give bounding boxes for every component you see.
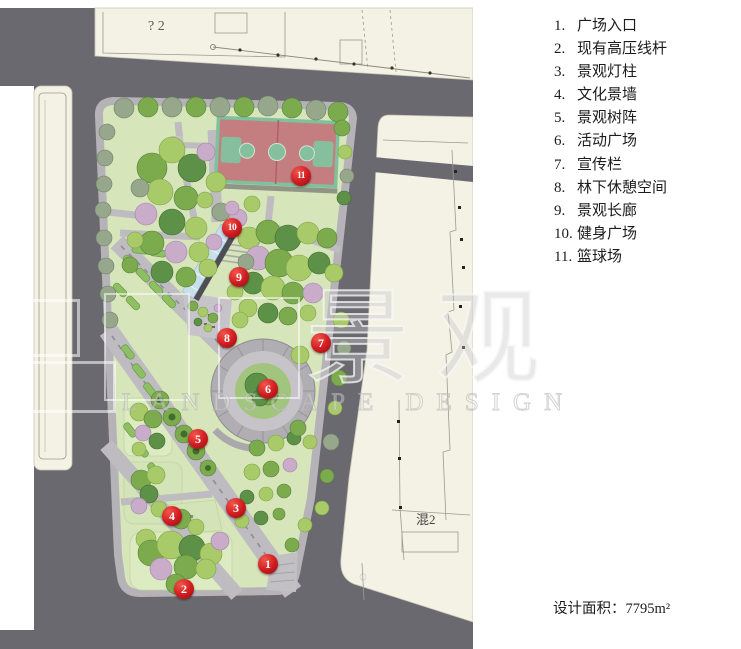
legend-item-label: 活动广场	[577, 133, 637, 149]
left-margin	[0, 86, 34, 630]
map-marker-4: 4	[162, 506, 182, 526]
legend-item-label: 健身广场	[577, 226, 637, 242]
legend-item-number: 4.	[554, 84, 577, 107]
legend-item-number: 3.	[554, 61, 577, 84]
design-area-note: 设计面积：7795m²	[553, 597, 670, 618]
legend-item-label: 广场入口	[577, 18, 637, 34]
legend-item: 2.现有高压线杆	[554, 38, 667, 61]
legend-item-number: 6.	[554, 130, 577, 153]
map-marker-9: 9	[229, 267, 249, 287]
landscape-plan-page: ? 2 混2	[0, 0, 741, 649]
block-label-hun: 混2	[416, 512, 436, 527]
legend-item: 3.景观灯柱	[554, 61, 667, 84]
legend-list: 1.广场入口2.现有高压线杆3.景观灯柱4.文化景墙5.景观树阵6.活动广场7.…	[554, 15, 667, 269]
legend-item: 9.景观长廊	[554, 200, 667, 223]
map-marker-2: 2	[174, 579, 194, 599]
map-marker-6: 6	[258, 379, 278, 399]
basketball-court	[215, 117, 340, 193]
legend-item-number: 1.	[554, 15, 577, 38]
legend-item-number: 2.	[554, 38, 577, 61]
legend-item: 4.文化景墙	[554, 84, 667, 107]
legend-item-label: 景观树阵	[577, 110, 637, 126]
legend-item-number: 10.	[554, 223, 577, 246]
map-marker-8: 8	[217, 328, 237, 348]
legend-item-number: 11.	[554, 246, 577, 269]
legend-item-label: 现有高压线杆	[577, 41, 667, 57]
site-plan-art: ? 2 混2	[0, 0, 540, 649]
legend-item: 1.广场入口	[554, 15, 667, 38]
legend-item: 7.宣传栏	[554, 154, 667, 177]
left-parcel	[34, 86, 72, 470]
legend-item-label: 篮球场	[577, 249, 622, 265]
map-marker-3: 3	[226, 498, 246, 518]
legend-item: 6.活动广场	[554, 130, 667, 153]
legend-item-number: 7.	[554, 154, 577, 177]
map-marker-7: 7	[311, 333, 331, 353]
legend-item-number: 8.	[554, 177, 577, 200]
legend-item-label: 景观长廊	[577, 203, 637, 219]
legend-item-label: 景观灯柱	[577, 64, 637, 80]
legend-item-label: 林下休憩空间	[577, 180, 667, 196]
legend-item: 5.景观树阵	[554, 107, 667, 130]
legend-item-number: 5.	[554, 107, 577, 130]
block-label-q2: ? 2	[148, 19, 165, 34]
legend-item: 10.健身广场	[554, 223, 667, 246]
map-marker-11: 11	[291, 166, 311, 186]
legend-item-label: 文化景墙	[577, 87, 637, 103]
map-right-margin	[473, 0, 540, 649]
legend-item-label: 宣传栏	[577, 157, 622, 173]
map-marker-5: 5	[188, 429, 208, 449]
map-marker-1: 1	[258, 554, 278, 574]
map-marker-10: 10	[222, 218, 242, 238]
site-plan-map: ? 2 混2	[0, 0, 540, 649]
legend-item: 11.篮球场	[554, 246, 667, 269]
legend-item: 8.林下休憩空间	[554, 177, 667, 200]
legend-item-number: 9.	[554, 200, 577, 223]
